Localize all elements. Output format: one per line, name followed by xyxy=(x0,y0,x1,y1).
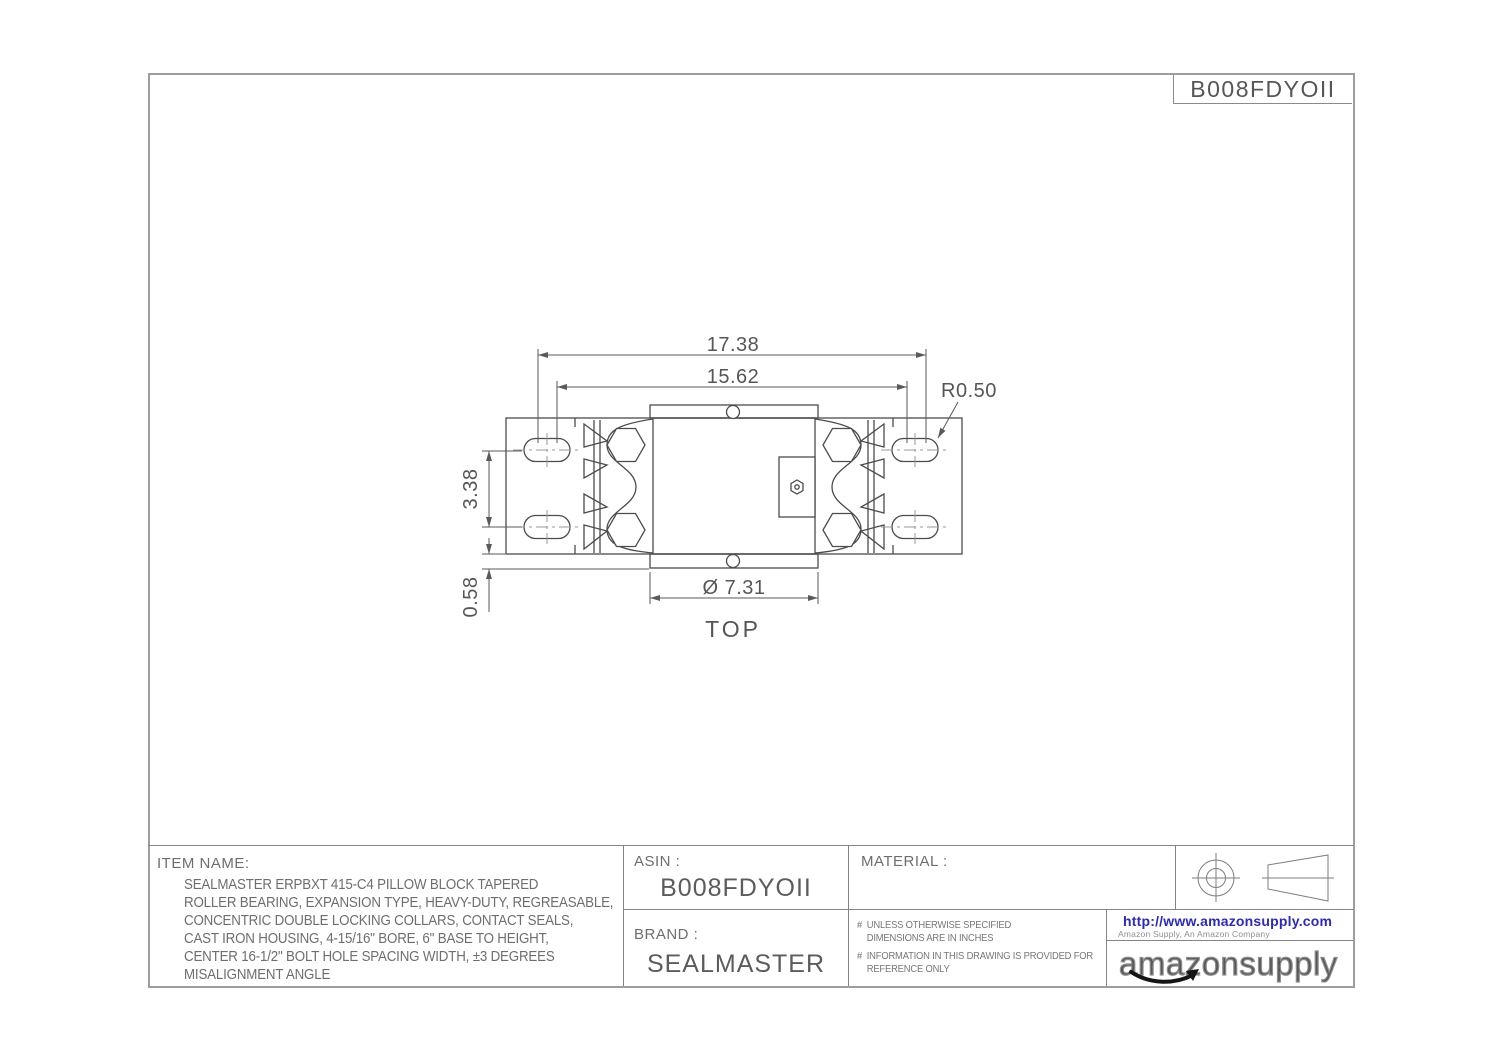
note-bullet: # xyxy=(857,951,862,976)
brand-value: SEALMASTER xyxy=(624,950,848,979)
note-text: INFORMATION IN THIS DRAWING IS PROVIDED … xyxy=(867,951,1093,976)
note-item: # INFORMATION IN THIS DRAWING IS PROVIDE… xyxy=(857,951,1105,976)
note-item: # UNLESS OTHERWISE SPECIFIED DIMENSIONS … xyxy=(857,920,1105,945)
item-name-label: ITEM NAME: xyxy=(157,855,623,872)
item-name-cell: ITEM NAME: SEALMASTER ERPBXT 415-C4 PILL… xyxy=(148,845,623,986)
brand-cell: BRAND : SEALMASTER xyxy=(623,909,848,986)
note-text: UNLESS OTHERWISE SPECIFIED DIMENSIONS AR… xyxy=(867,920,1011,945)
material-cell: MATERIAL : xyxy=(848,845,1175,909)
notes-cell: # UNLESS OTHERWISE SPECIFIED DIMENSIONS … xyxy=(848,909,1106,986)
asin-label: ASIN : xyxy=(634,853,680,870)
amazonsupply-logo: amazonsupply xyxy=(1107,941,1353,986)
website-cell: http://www.amazonsupply.com Amazon Suppl… xyxy=(1106,909,1353,940)
item-description: SEALMASTER ERPBXT 415-C4 PILLOW BLOCK TA… xyxy=(184,876,647,984)
logo-cell: amazonsupply xyxy=(1106,940,1353,986)
website-tagline: Amazon Supply, An Amazon Company xyxy=(1118,929,1270,939)
brand-label: BRAND : xyxy=(634,926,698,943)
asin-value: B008FDYOII xyxy=(624,874,848,903)
logo-text: amazonsupply xyxy=(1119,945,1338,982)
note-bullet: # xyxy=(857,920,862,945)
drawing-sheet: B008FDYOII xyxy=(0,0,1500,1059)
part-number: B008FDYOII xyxy=(1190,76,1335,103)
material-label: MATERIAL : xyxy=(861,853,948,870)
website-link[interactable]: http://www.amazonsupply.com xyxy=(1123,913,1332,929)
asin-cell: ASIN : B008FDYOII xyxy=(623,845,848,909)
part-number-box: B008FDYOII xyxy=(1173,75,1352,104)
projection-symbol-cell xyxy=(1175,845,1353,909)
third-angle-projection-icon xyxy=(1176,846,1353,909)
